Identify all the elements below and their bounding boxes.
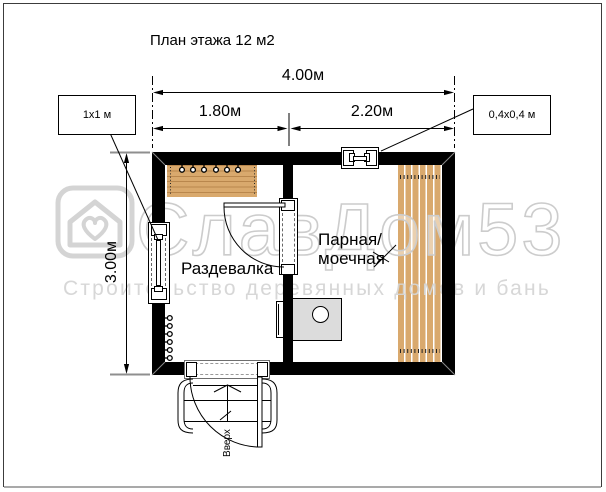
dimension-left-width: 1.80м xyxy=(180,103,260,121)
dimension-total-width: 4.00м xyxy=(263,67,343,85)
window-size-label-04x04: 0,4x0,4 м xyxy=(489,109,536,121)
dimension-height: 3.00м xyxy=(103,222,121,302)
room-label-steam-line1: Парная/ xyxy=(318,230,385,249)
window-size-box-1x1: 1x1 м xyxy=(58,95,136,135)
leader-lines xyxy=(110,109,473,267)
room-label-steam: Парная/ моечная xyxy=(318,230,385,268)
room-label-changing: Раздевалка xyxy=(181,259,273,279)
interior-door-leaf xyxy=(224,203,285,267)
floor-plan-canvas: План этажа 12 м2 СлавДом53 Строительство… xyxy=(0,0,606,492)
window-size-box-04x04: 0,4x0,4 м xyxy=(473,95,551,135)
hooks-left-icon xyxy=(165,316,172,361)
room-label-steam-line2: моечная xyxy=(318,249,385,268)
window-size-label-1x1: 1x1 м xyxy=(83,109,111,121)
dimension-right-width: 2.20м xyxy=(332,103,412,121)
page-title: План этажа 12 м2 xyxy=(150,32,275,49)
stairs-direction-tick xyxy=(220,411,231,420)
stairs-direction-label: Вверх xyxy=(222,423,234,463)
hooks-top-icon xyxy=(180,165,241,172)
